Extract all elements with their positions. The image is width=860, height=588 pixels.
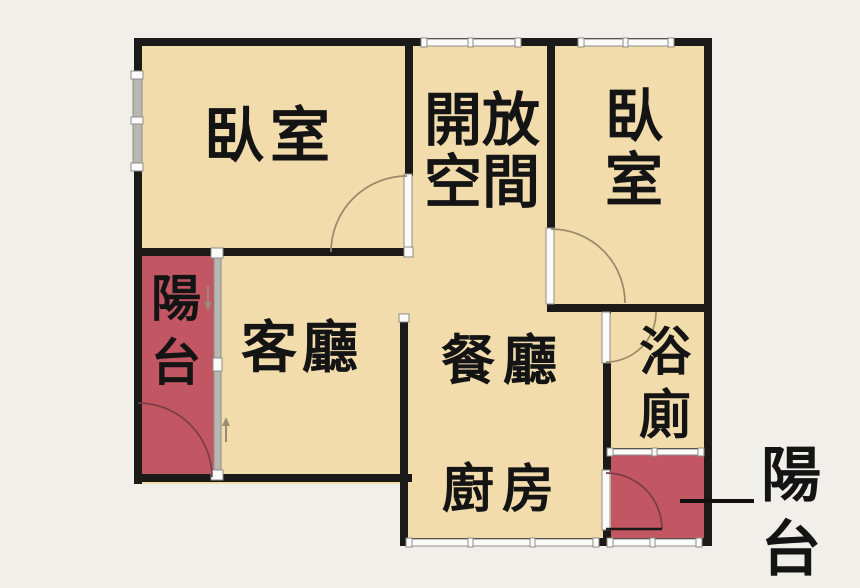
open-space-label: 開放 空間 bbox=[424, 90, 540, 214]
wall-bedroom-left-bottom bbox=[134, 248, 412, 256]
window-kitchen-cap-3 bbox=[530, 538, 535, 547]
window-top-openspace-cap-right bbox=[515, 38, 521, 47]
window-top-bedroom-cap-right bbox=[668, 38, 674, 47]
window-kitchen-cap-2 bbox=[468, 538, 473, 547]
passage-jamb-north bbox=[404, 247, 413, 257]
wall-living-bottom bbox=[134, 474, 412, 482]
bedroom-left-label: 臥室 bbox=[204, 105, 336, 170]
balcony-left-label: 陽 台 bbox=[151, 267, 201, 395]
living-room-label: 客廳 bbox=[241, 318, 363, 378]
balcony-right-floor bbox=[611, 455, 704, 538]
window-bathroom-balcony-cap-left bbox=[607, 448, 613, 456]
window-kitchen-bottom bbox=[408, 539, 598, 546]
exterior-notch bbox=[134, 484, 400, 546]
window-balcony-bottom-cap-right bbox=[696, 538, 702, 547]
bathroom-label: 浴 廁 bbox=[639, 322, 691, 448]
window-bathroom-balcony-cap-mid bbox=[652, 448, 657, 456]
window-left-cap-mid bbox=[131, 117, 143, 124]
floor-plan-page: 臥室 開放 空間 臥 室 陽 台 客廳 餐廳 浴 廁 廚房 陽 台 bbox=[0, 0, 860, 588]
window-left-cap-bottom bbox=[131, 163, 143, 171]
door-panel-bedroom-right bbox=[546, 228, 554, 304]
window-balcony-bottom-cap-left bbox=[607, 538, 613, 547]
wall-bedroom-right-left bbox=[547, 38, 555, 228]
wall-bedroom-left-right bbox=[405, 38, 413, 176]
window-top-bedroom-cap-mid bbox=[623, 38, 628, 47]
wall-right bbox=[704, 38, 712, 546]
window-kitchen-cap-4 bbox=[593, 538, 599, 547]
window-kitchen-cap-1 bbox=[406, 538, 412, 547]
wall-bedroom-right-bottom bbox=[547, 304, 712, 312]
window-top-bedroom-cap-left bbox=[578, 38, 584, 47]
dining-room-label: 餐廳 bbox=[441, 332, 565, 390]
window-balcony-bottom-cap-mid bbox=[650, 538, 655, 547]
window-top-openspace-cap-mid bbox=[468, 38, 473, 47]
sliding-door-cap-mid bbox=[213, 358, 222, 371]
door-panel-bathroom bbox=[602, 312, 610, 363]
kitchen-label: 廚房 bbox=[442, 462, 562, 518]
wall-dining-left bbox=[400, 314, 408, 546]
window-top-openspace-cap-left bbox=[421, 38, 427, 47]
window-left-cap-top bbox=[131, 71, 143, 79]
passage-jamb-south bbox=[399, 314, 409, 322]
bedroom-right-label: 臥 室 bbox=[605, 85, 663, 213]
balcony-right-label: 陽 台 bbox=[761, 439, 821, 587]
window-bathroom-balcony-cap-right bbox=[698, 448, 704, 456]
wall-bathroom-left bbox=[603, 363, 611, 450]
door-panel-bedroom-left bbox=[404, 174, 412, 254]
sliding-door-cap-top bbox=[211, 248, 223, 258]
door-panel-balcony-right bbox=[602, 470, 610, 530]
